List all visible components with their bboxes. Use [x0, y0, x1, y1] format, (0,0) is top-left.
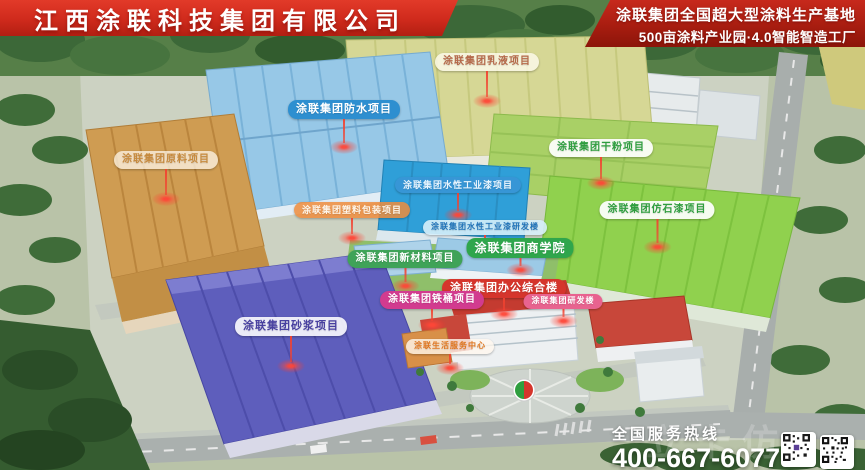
banner-tagline-1: 涂联集团全国超大型涂料生产基地 [585, 4, 856, 25]
qr-code-right-pattern [822, 437, 848, 463]
qr-code-left-pattern [783, 434, 810, 461]
company-name: 江西涂联科技集团有限公司 [34, 1, 406, 36]
qr-code-right [820, 435, 854, 469]
banner-tagline-2: 500亩涂料产业园·4.0智能智造工厂 [585, 26, 856, 46]
hotline-number: 400-667-6077 [612, 444, 780, 470]
qr-code-left [781, 432, 816, 467]
company-banner: 江西涂联科技集团有限公司 [0, 0, 458, 36]
building-waterborne-industrial [376, 160, 530, 250]
base-banner: 涂联集团全国超大型涂料生产基地 500亩涂料产业园·4.0智能智造工厂 [585, 0, 865, 47]
poster: 江西涂联科技集团有限公司 涂联集团全国超大型涂料生产基地 500亩涂料产业园·4… [0, 0, 865, 470]
aerial-render [0, 0, 865, 470]
hotline-label: 全国服务热线 [612, 423, 780, 444]
hotline: 全国服务热线 400-667-6077 [612, 423, 780, 470]
